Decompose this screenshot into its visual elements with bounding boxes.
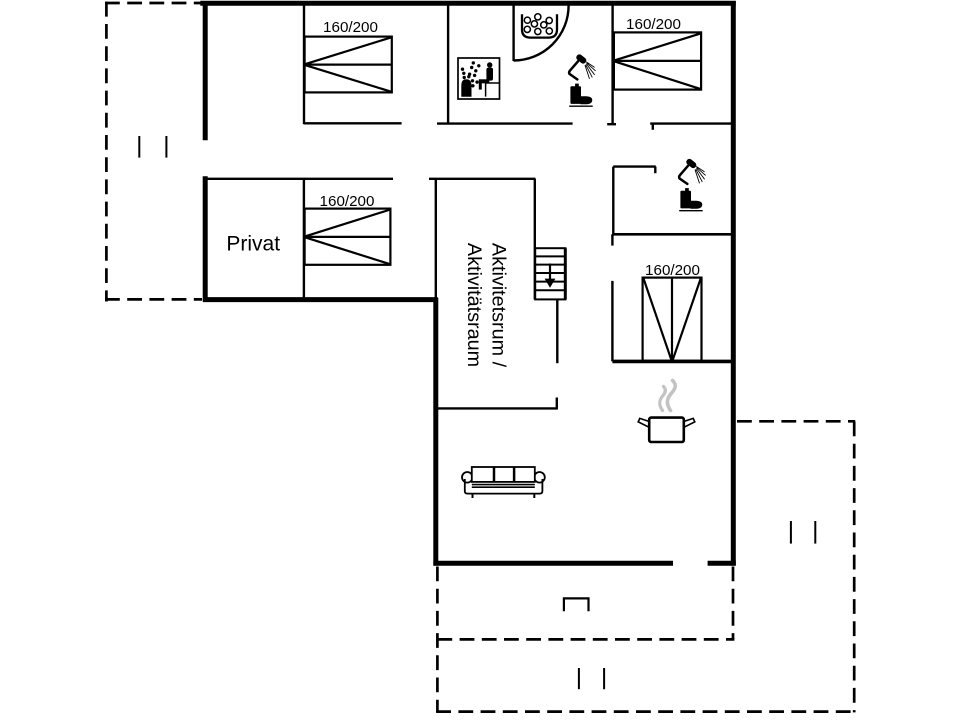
svg-text:160/200: 160/200: [323, 19, 378, 36]
svg-text:Privat: Privat: [226, 232, 280, 255]
svg-text:160/200: 160/200: [320, 193, 375, 210]
svg-text:160/200: 160/200: [626, 16, 681, 33]
svg-text:160/200: 160/200: [645, 262, 700, 279]
